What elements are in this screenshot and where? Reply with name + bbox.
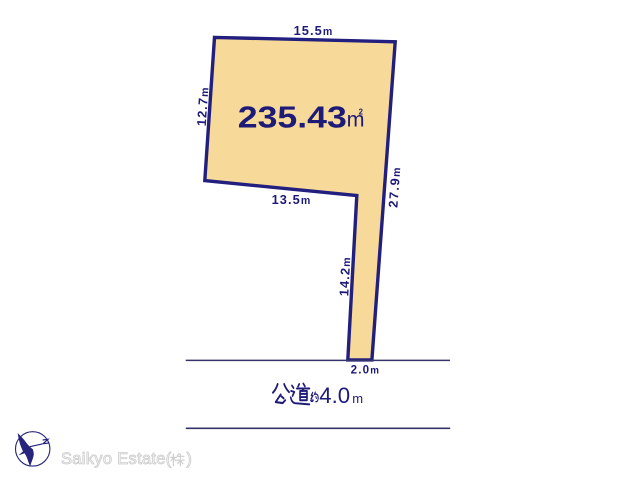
svg-text:235.43: 235.43 <box>238 99 347 134</box>
svg-text:Saikyo Estate(: Saikyo Estate( <box>61 450 172 468</box>
svg-text:m: m <box>352 391 363 406</box>
svg-text:2.0m: 2.0m <box>351 364 381 377</box>
svg-text:): ) <box>186 450 192 468</box>
svg-text:13.5m: 13.5m <box>272 192 312 207</box>
svg-text:4.0: 4.0 <box>319 383 350 408</box>
svg-text:2: 2 <box>359 108 364 117</box>
svg-text:15.5m: 15.5m <box>294 23 334 38</box>
